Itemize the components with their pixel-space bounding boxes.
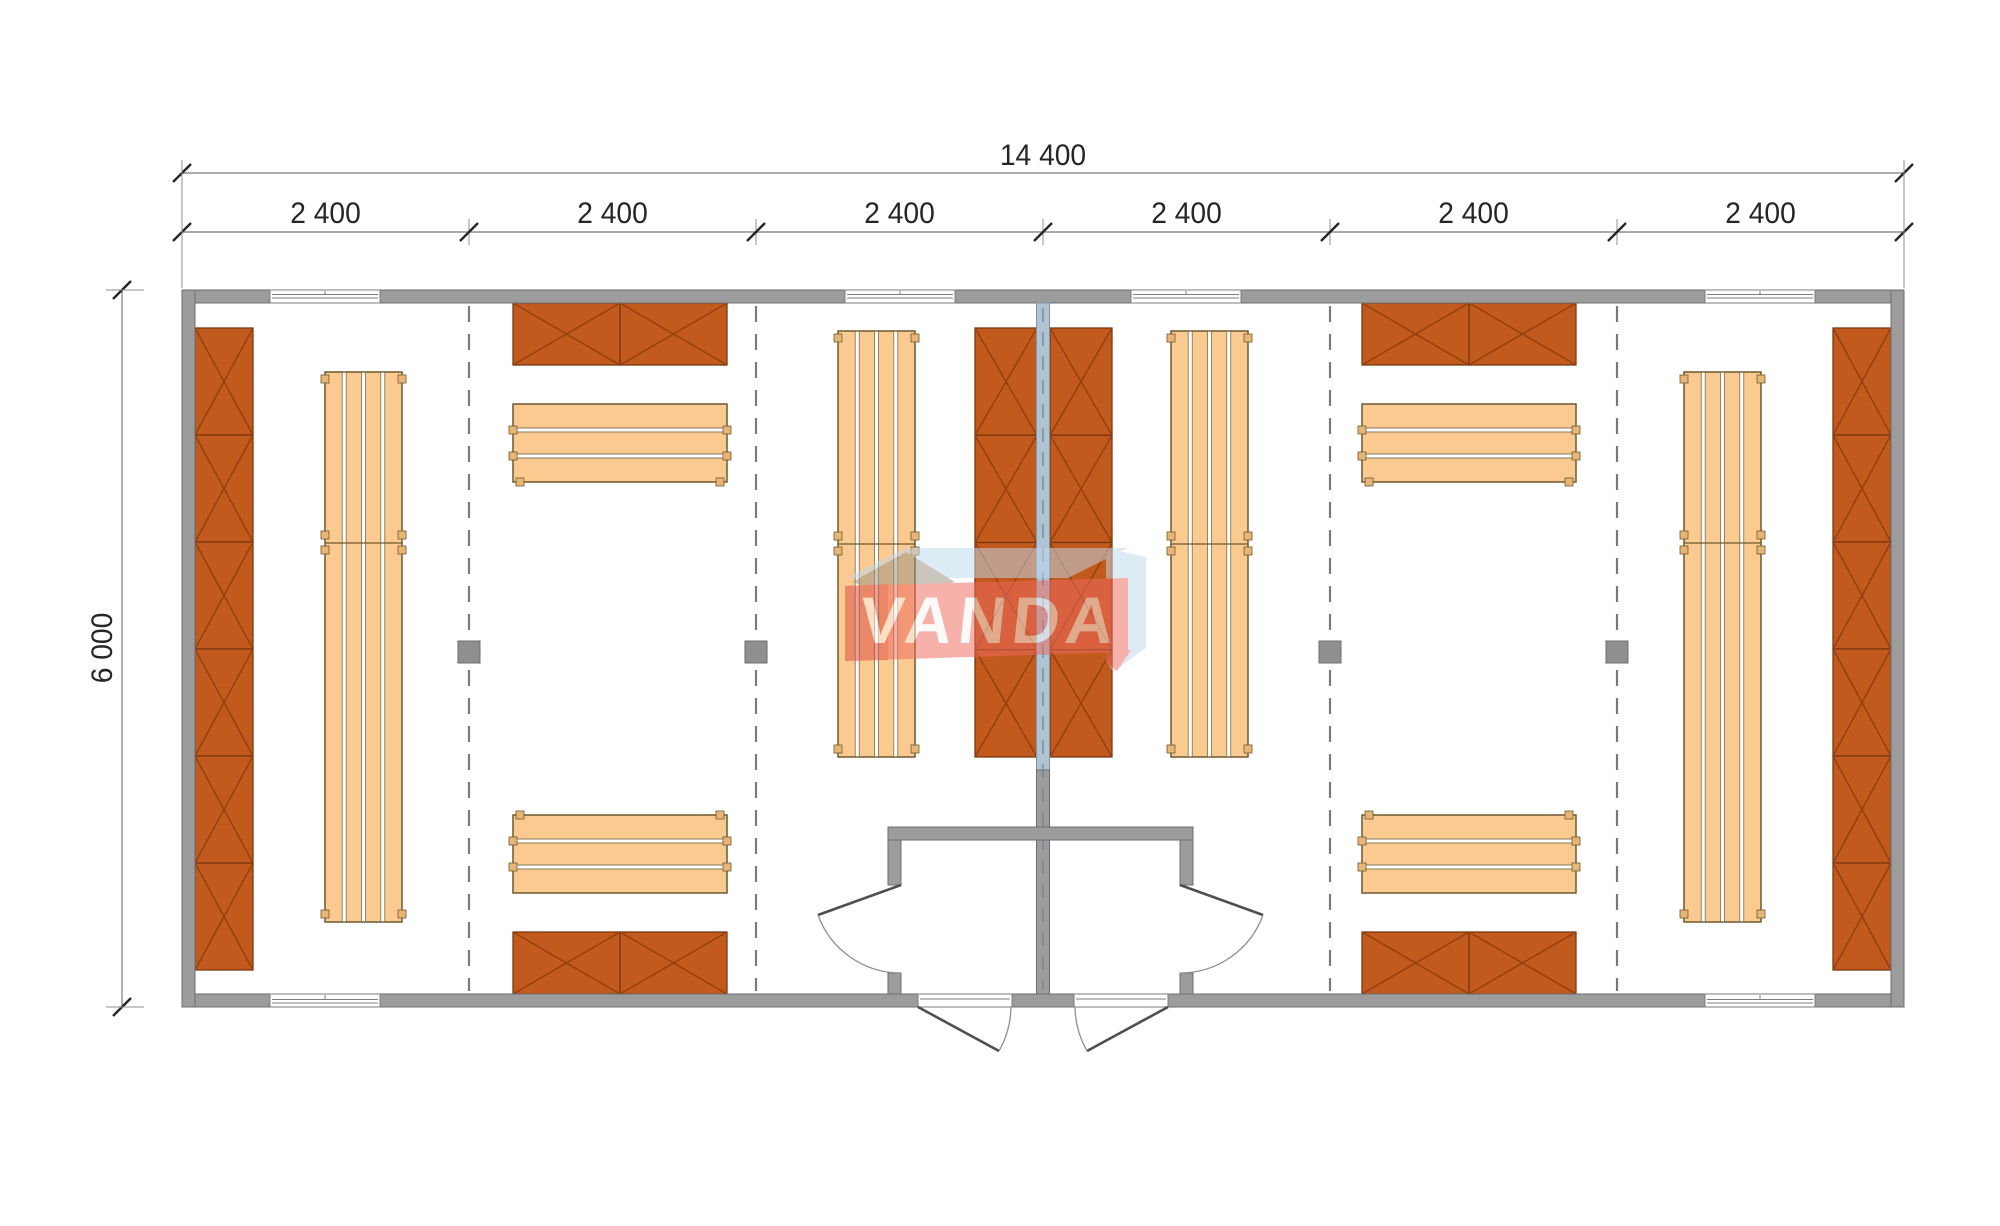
cabinet: [1833, 328, 1891, 970]
bench-vertical: [834, 331, 919, 757]
bench-foot: [1167, 532, 1175, 540]
bench-foot: [911, 532, 919, 540]
bench-foot: [398, 531, 406, 539]
bench-foot: [1244, 745, 1252, 753]
door-threshold: [918, 994, 1012, 1007]
bench-foot: [1680, 375, 1688, 383]
bench-foot: [1244, 532, 1252, 540]
dimension-module-2: 2 400: [478, 199, 748, 229]
bench-foot: [723, 837, 731, 845]
bench-foot: [321, 546, 329, 554]
bench-horizontal: [1358, 404, 1580, 486]
bench-foot: [1358, 426, 1366, 434]
bench-foot: [1244, 334, 1252, 342]
bench-foot: [1572, 863, 1580, 871]
bench-foot: [723, 863, 731, 871]
vestibule-wall-left-upper: [888, 840, 901, 885]
bench-foot: [1757, 531, 1765, 539]
door-swing-arc: [818, 915, 901, 973]
bench-foot: [1167, 745, 1175, 753]
bench-horizontal: [509, 811, 731, 893]
dimension-module-6: 2 400: [1626, 199, 1896, 229]
cabinet: [513, 932, 727, 994]
bench-foot: [1358, 863, 1366, 871]
bench-foot: [321, 375, 329, 383]
floor-plan-canvas: VANDA 14 400 2 400 2 400 2 400 2 400 2 4…: [0, 0, 2000, 1226]
bench-foot: [516, 478, 524, 486]
bench-foot: [321, 531, 329, 539]
vestibule-wall-top: [888, 827, 1193, 840]
cabinet: [1362, 303, 1576, 365]
door-swing-arc: [1075, 1007, 1087, 1051]
bench-foot: [1365, 811, 1373, 819]
bench-foot: [509, 426, 517, 434]
structural-post: [1606, 641, 1628, 663]
cabinet: [975, 328, 1037, 757]
door-swing-arc: [999, 1007, 1011, 1051]
structural-post: [458, 641, 480, 663]
structural-post: [745, 641, 767, 663]
bench-foot: [1358, 837, 1366, 845]
bench-foot: [834, 547, 842, 555]
bench-foot: [1680, 910, 1688, 918]
wall-top: [182, 290, 1904, 303]
vestibule-wall-right-lower: [1180, 973, 1193, 994]
door-leaf: [1180, 885, 1263, 915]
bench-foot: [1167, 334, 1175, 342]
bench-foot: [1365, 478, 1373, 486]
bench-foot: [1680, 546, 1688, 554]
window: [845, 290, 955, 303]
door-swing-arc: [1180, 915, 1263, 973]
bench-foot: [834, 334, 842, 342]
window: [1131, 290, 1241, 303]
window: [270, 994, 380, 1007]
cabinet: [513, 303, 727, 365]
window: [270, 290, 380, 303]
dimension-total-height: 6 000: [88, 573, 118, 723]
wall-right: [1891, 290, 1904, 1007]
wall-bottom: [182, 994, 1904, 1007]
door-leaf: [818, 885, 901, 915]
bench-foot: [911, 334, 919, 342]
bench-foot: [398, 546, 406, 554]
structural-post: [1319, 641, 1341, 663]
window: [1705, 290, 1815, 303]
floor-plan-drawing: VANDA: [0, 0, 2000, 1226]
bench-foot: [1565, 811, 1573, 819]
bench-foot: [716, 478, 724, 486]
bench-foot: [1565, 478, 1573, 486]
bench-vertical: [1167, 331, 1252, 757]
bench-foot: [723, 452, 731, 460]
bench-foot: [716, 811, 724, 819]
door-threshold: [1074, 994, 1168, 1007]
bench-foot: [321, 910, 329, 918]
vestibule-wall-left-lower: [888, 973, 901, 994]
dimension-total-width: 14 400: [234, 141, 1853, 171]
bench-foot: [1244, 547, 1252, 555]
bench-foot: [834, 532, 842, 540]
bench-vertical: [1680, 372, 1765, 922]
cabinet: [195, 328, 253, 970]
bench-foot: [398, 910, 406, 918]
bench-foot: [1572, 837, 1580, 845]
window: [1705, 994, 1815, 1007]
bench-foot: [834, 745, 842, 753]
door-leaf: [1087, 1007, 1168, 1051]
wall-left: [182, 290, 195, 1007]
vestibule-wall-right-upper: [1180, 840, 1193, 885]
dimension-module-3: 2 400: [765, 199, 1035, 229]
bench-foot: [1572, 452, 1580, 460]
cabinet: [1362, 932, 1576, 994]
bench-foot: [1358, 452, 1366, 460]
bench-horizontal: [509, 404, 731, 486]
dimension-module-4: 2 400: [1052, 199, 1322, 229]
bench-foot: [723, 426, 731, 434]
bench-foot: [509, 837, 517, 845]
dimension-module-5: 2 400: [1339, 199, 1609, 229]
bench-foot: [1757, 910, 1765, 918]
bench-foot: [509, 863, 517, 871]
bench-foot: [1167, 547, 1175, 555]
bench-foot: [1572, 426, 1580, 434]
bench-foot: [516, 811, 524, 819]
bench-foot: [1757, 546, 1765, 554]
bench-foot: [509, 452, 517, 460]
cabinet: [1050, 328, 1112, 757]
dimension-module-1: 2 400: [191, 199, 461, 229]
bench-foot: [398, 375, 406, 383]
bench-vertical: [321, 372, 406, 922]
vanda-watermark-text: VANDA: [856, 584, 1124, 658]
bench-horizontal: [1358, 811, 1580, 893]
bench-foot: [1757, 375, 1765, 383]
bench-foot: [1680, 531, 1688, 539]
door-leaf: [918, 1007, 999, 1051]
bench-foot: [911, 745, 919, 753]
